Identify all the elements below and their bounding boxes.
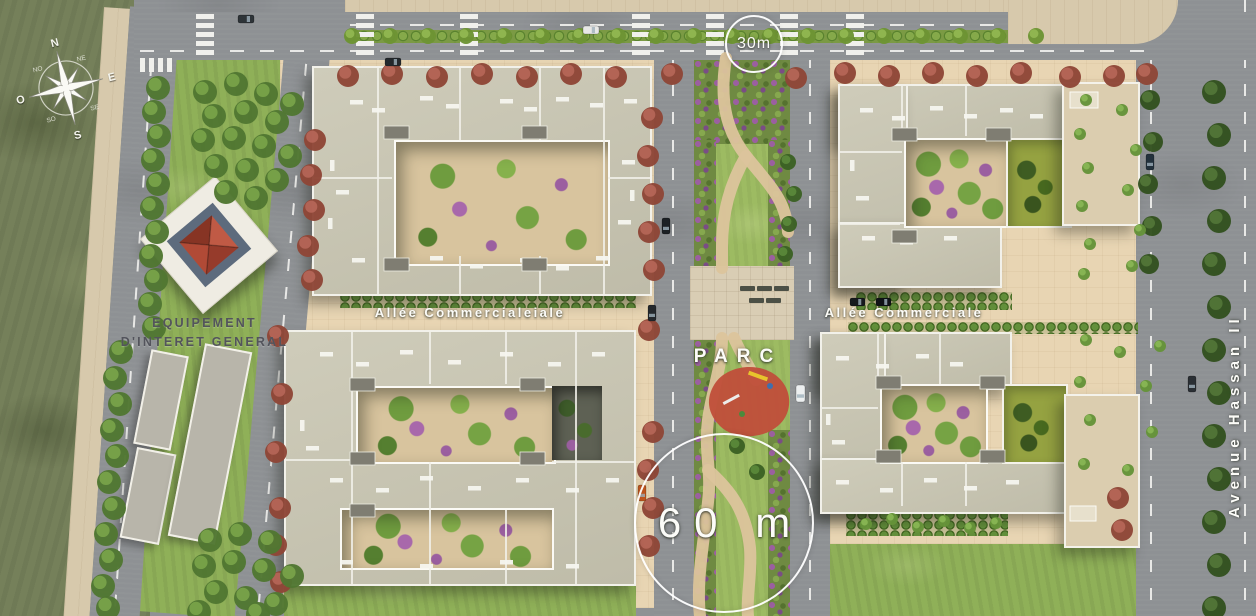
compass-northeast-label: NE: [76, 54, 87, 63]
alley-left-label: Allée Commercialeiale: [358, 305, 582, 320]
compass-star: [20, 42, 112, 134]
avenue-label: Avenue Hassan II: [1226, 228, 1250, 518]
measurement-30m-label: 30m: [737, 35, 771, 53]
compass-east-label: E: [107, 71, 117, 84]
equipment-zone-label: EQUIPEMENT D'INTERET GENERAL: [112, 314, 297, 353]
decoration-layer: [0, 0, 1256, 616]
measurement-circle-60m: 60 m: [634, 433, 814, 613]
site-plan: N E S O NE SE SO NO EQUIPEMENT D'INTERET…: [0, 0, 1256, 616]
compass-southwest-label: SO: [46, 115, 57, 124]
roof-seams: [286, 68, 966, 584]
compass-west-label: O: [15, 93, 27, 107]
avenue-side-palms: [1138, 90, 1163, 274]
equipment-label-line2: D'INTERET GENERAL: [121, 335, 288, 349]
median-palm-trees: [344, 28, 1044, 44]
compass-northwest-label: NO: [32, 65, 43, 74]
park-label: PARC: [688, 346, 788, 368]
compass-southeast-label: SE: [90, 104, 101, 113]
playground: [709, 367, 789, 436]
measurement-circle-30m: 30m: [725, 15, 783, 73]
alley-right-label: Allée Commerciale: [798, 305, 1010, 320]
compass-north-label: N: [50, 37, 61, 51]
measurement-60m-label: 60 m: [645, 499, 803, 547]
parking-bars: [740, 286, 789, 303]
equipment-label-line1: EQUIPEMENT: [152, 316, 257, 330]
